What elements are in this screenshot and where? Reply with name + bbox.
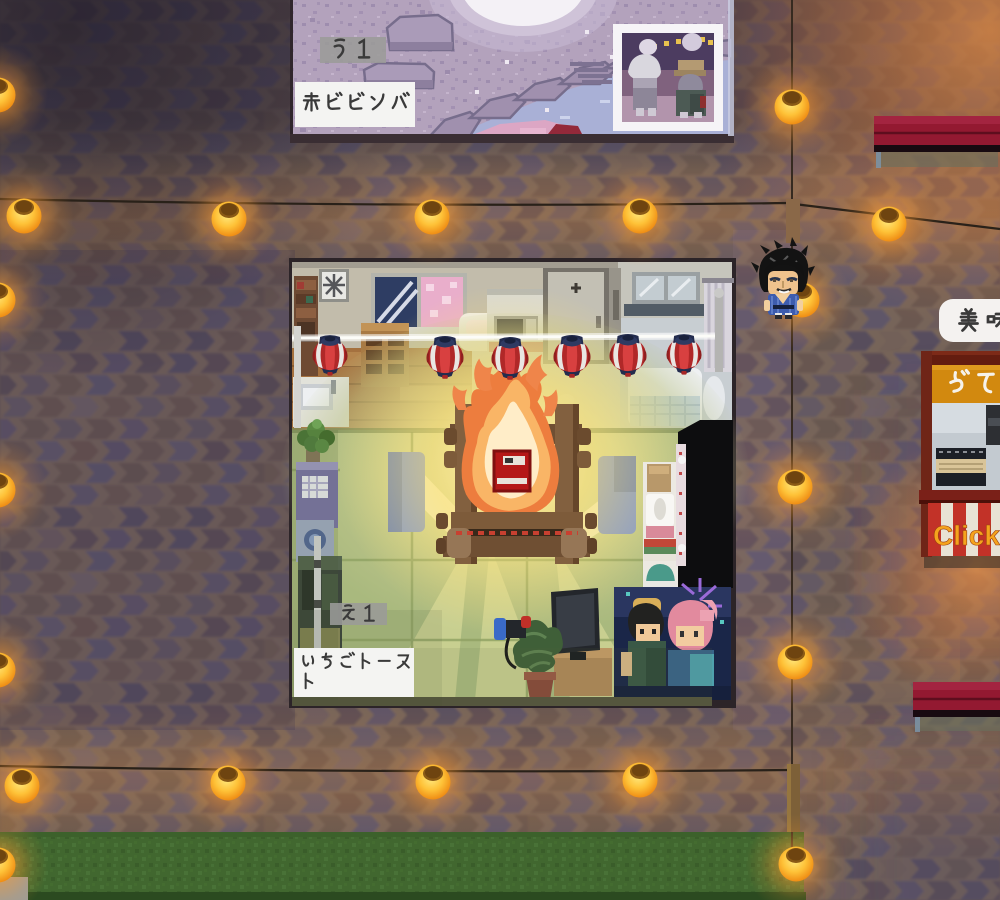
svg-text:Click: Click bbox=[933, 520, 1000, 551]
